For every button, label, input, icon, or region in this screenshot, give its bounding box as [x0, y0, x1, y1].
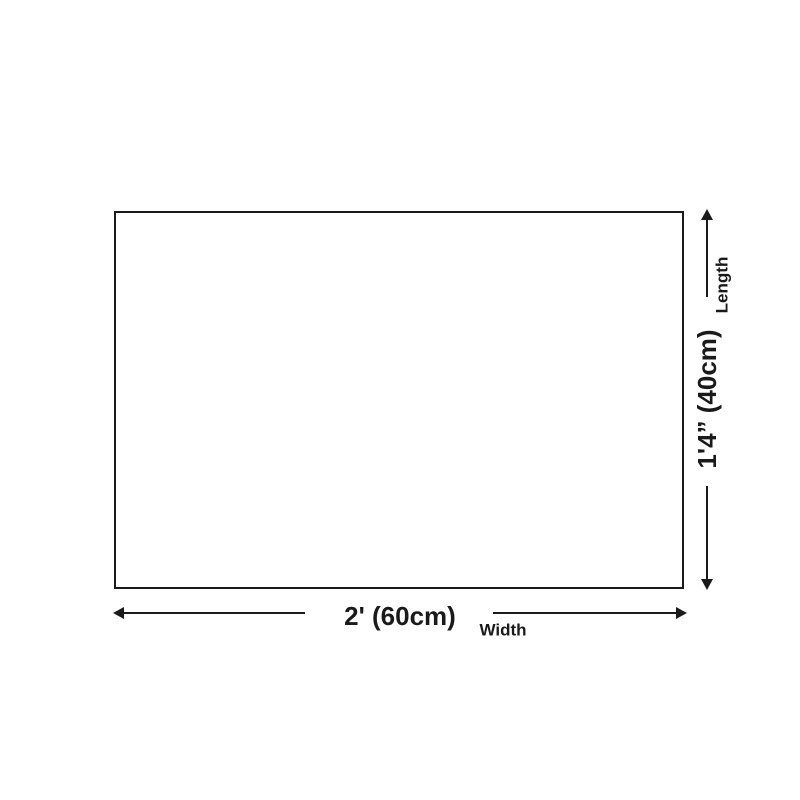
length-dimension-line-top — [706, 219, 709, 297]
length-axis-label: Length — [714, 257, 731, 314]
width-dimension-line-left — [123, 612, 305, 615]
width-arrow-right-icon — [676, 607, 687, 619]
length-dimension-line-bottom — [706, 486, 709, 579]
size-diagram: Length 1'4” (40cm) 2' (60cm) Width — [0, 0, 800, 800]
width-axis-label: Width — [479, 622, 526, 639]
length-value-label: 1'4” (40cm) — [694, 329, 720, 468]
product-outline-box — [114, 211, 684, 589]
width-dimension-line-right — [493, 612, 677, 615]
length-arrow-down-icon — [701, 579, 713, 590]
width-value-label: 2' (60cm) — [344, 603, 456, 629]
